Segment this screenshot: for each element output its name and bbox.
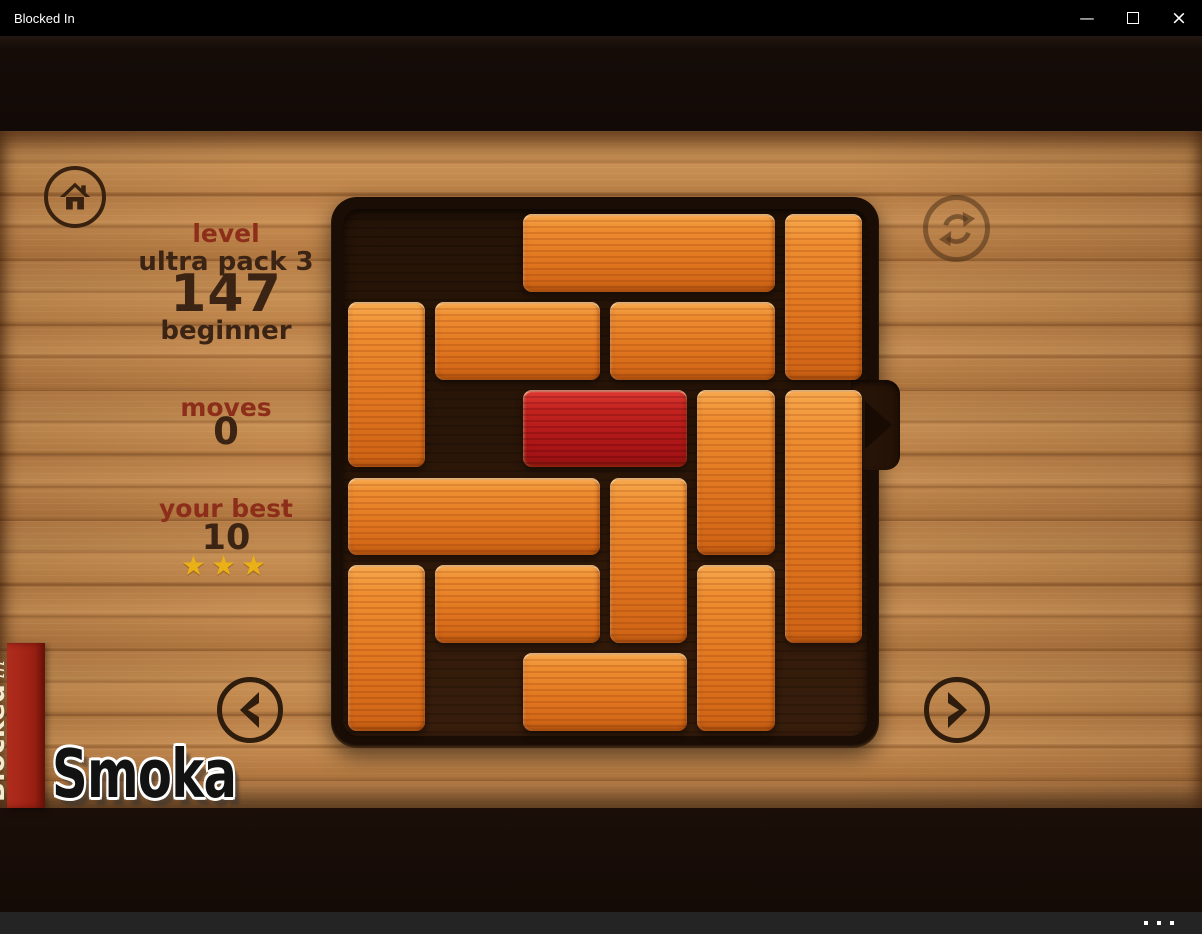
wood-block[interactable] (697, 565, 774, 731)
arrow-right-icon (865, 401, 892, 449)
minimize-button[interactable]: — (1064, 0, 1110, 36)
maximize-icon (1127, 12, 1139, 24)
wood-block[interactable] (523, 653, 688, 731)
level-number: 147 (120, 264, 332, 324)
difficulty-label: beginner (120, 316, 332, 346)
restart-button[interactable] (923, 195, 990, 262)
wood-block[interactable] (697, 390, 774, 556)
top-letterbox (0, 36, 1202, 131)
previous-level-button[interactable] (217, 677, 283, 743)
circular-arrows-icon (938, 210, 976, 248)
game-logo-text: Blockedin (0, 642, 11, 802)
house-icon (57, 180, 93, 214)
title-bar: Blocked In — × (0, 0, 1202, 36)
app-window: { "window": { "title": "Blocked In", "co… (0, 0, 1202, 934)
chevron-right-icon (940, 690, 974, 730)
ellipsis-icon (1144, 921, 1148, 925)
wood-block[interactable] (348, 565, 425, 731)
wood-block[interactable] (610, 302, 775, 380)
wood-block[interactable] (348, 302, 425, 468)
home-button[interactable] (44, 166, 106, 228)
game-logo-banner: Blockedin (7, 643, 45, 808)
logo-subtitle: in (0, 660, 9, 678)
moves-value: 0 (120, 410, 332, 453)
wood-block[interactable] (785, 214, 862, 380)
wood-block[interactable] (610, 478, 687, 644)
wood-block[interactable] (523, 214, 775, 292)
maximize-button[interactable] (1110, 0, 1156, 36)
window-title: Blocked In (14, 11, 75, 26)
more-options-button[interactable] (1132, 912, 1186, 934)
wood-block[interactable] (435, 565, 600, 643)
bottom-letterbox (0, 808, 1202, 912)
wood-block[interactable] (348, 478, 600, 556)
logo-title: Blocked (0, 684, 11, 802)
star-rating: ★★★ (120, 549, 332, 582)
app-bottom-bar (0, 912, 1202, 934)
window-controls: — × (1064, 0, 1202, 36)
chevron-left-icon (233, 690, 267, 730)
wood-block[interactable] (785, 390, 862, 644)
level-label: level (120, 219, 332, 248)
watermark-text: Smoka (52, 735, 236, 813)
board-well (343, 209, 867, 736)
next-level-button[interactable] (924, 677, 990, 743)
wood-block[interactable] (435, 302, 600, 380)
target-block[interactable] (523, 390, 688, 468)
puzzle-board (331, 197, 879, 748)
close-button[interactable]: × (1156, 0, 1202, 36)
